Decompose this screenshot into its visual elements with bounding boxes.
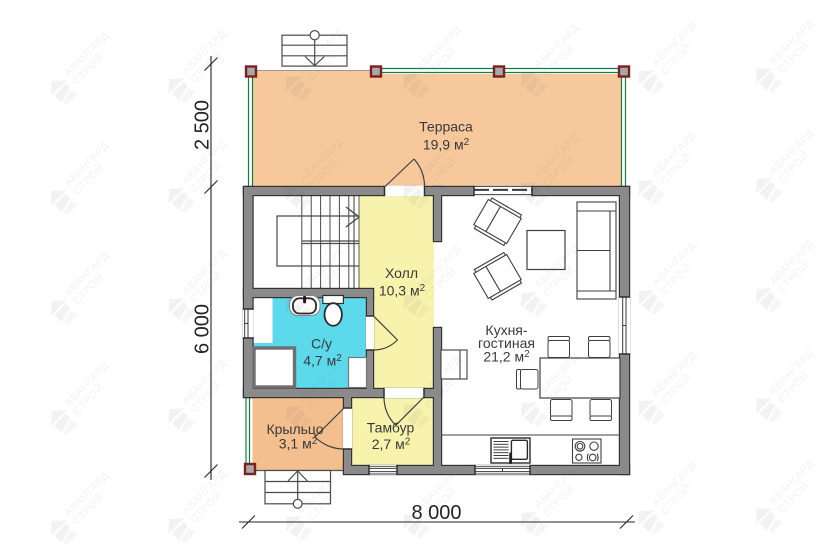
svg-text:Терраса: Терраса [419,119,473,135]
svg-text:21,2 м2: 21,2 м2 [483,349,530,365]
svg-text:С/у: С/у [311,336,332,352]
svg-text:6 000: 6 000 [192,304,214,354]
svg-text:Тамбур: Тамбур [367,420,415,436]
svg-text:Холл: Холл [385,265,418,281]
svg-text:2 500: 2 500 [192,100,214,150]
